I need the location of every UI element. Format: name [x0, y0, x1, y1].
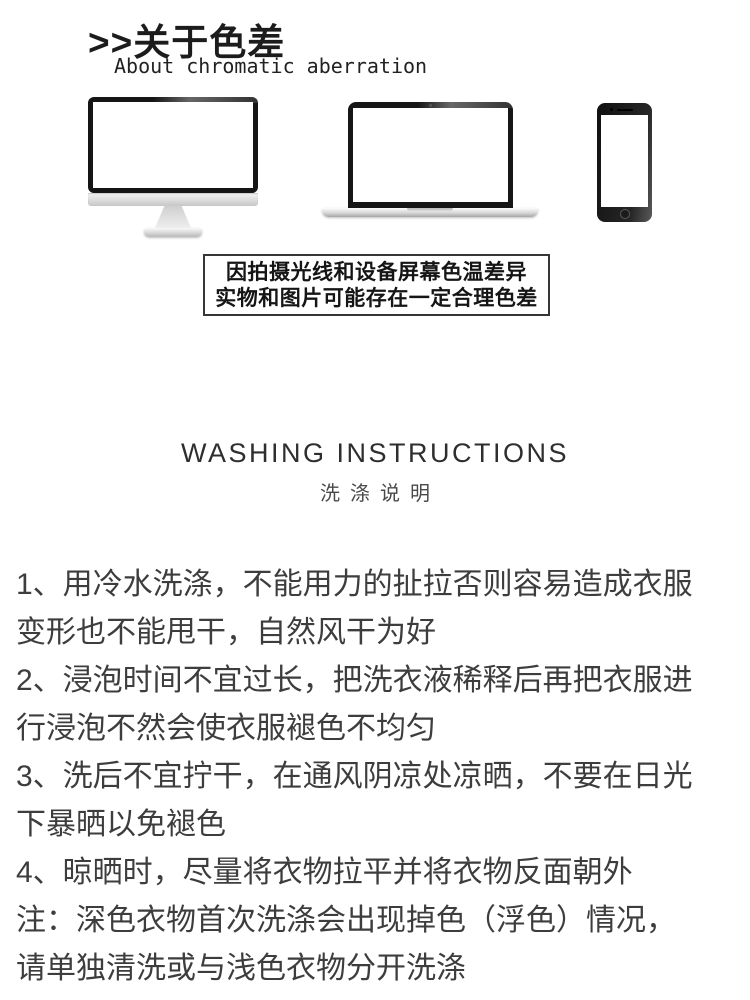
washing-instruction-note: 注：深色衣物首次洗涤会出现掉色（浮色）情况， 请单独清洗或与浅色衣物分开洗涤	[16, 897, 740, 993]
monitor-stand-neck	[155, 206, 191, 228]
washing-instruction-item: 3、洗后不宜拧干，在通风阴凉处凉晒，不要在日光 下暴晒以免褪色	[16, 753, 740, 849]
laptop-bezel-gloss	[418, 102, 513, 108]
monitor-chin	[88, 193, 258, 206]
notice-line-2: 实物和图片可能存在一定合理色差	[205, 286, 548, 312]
phone-camera-dot	[610, 108, 613, 111]
laptop-base-notch	[407, 208, 453, 212]
laptop-icon	[322, 102, 538, 217]
washing-instruction-item: 4、晾晒时，尽量将衣物拉平并将衣物反面朝外	[16, 849, 740, 897]
phone-home-button	[620, 209, 630, 219]
monitor-bezel-gloss	[153, 97, 258, 103]
laptop-screen	[348, 102, 513, 208]
chromatic-notice-box: 因拍摄光线和设备屏幕色温差异 实物和图片可能存在一定合理色差	[203, 254, 550, 316]
chromatic-section-subtitle: About chromatic aberration	[114, 54, 427, 78]
desktop-monitor-icon	[88, 97, 258, 237]
washing-instructions-list: 1、用冷水洗涤，不能用力的扯拉否则容易造成衣服 变形也不能甩干，自然风干为好 2…	[16, 561, 740, 993]
phone-screen-display	[601, 115, 648, 207]
monitor-stand-base	[144, 228, 202, 237]
laptop-screen-display	[353, 108, 508, 202]
washing-instruction-item: 1、用冷水洗涤，不能用力的扯拉否则容易造成衣服 变形也不能甩干，自然风干为好	[16, 561, 740, 657]
monitor-screen	[88, 97, 258, 193]
laptop-base	[322, 208, 538, 217]
notice-line-1: 因拍摄光线和设备屏幕色温差异	[205, 260, 548, 286]
phone-speaker	[617, 109, 633, 111]
washing-section-subtitle: 洗涤说明	[0, 477, 750, 506]
monitor-screen-display	[93, 102, 253, 188]
product-description-page: >>关于色差 About chromatic aberration	[0, 0, 750, 1000]
smartphone-icon	[597, 103, 652, 222]
washing-instruction-item: 2、浸泡时间不宜过长，把洗衣液稀释后再把衣服进 行浸泡不然会使衣服褪色不均匀	[16, 657, 740, 753]
washing-section-title: WASHING INSTRUCTIONS	[0, 438, 750, 469]
